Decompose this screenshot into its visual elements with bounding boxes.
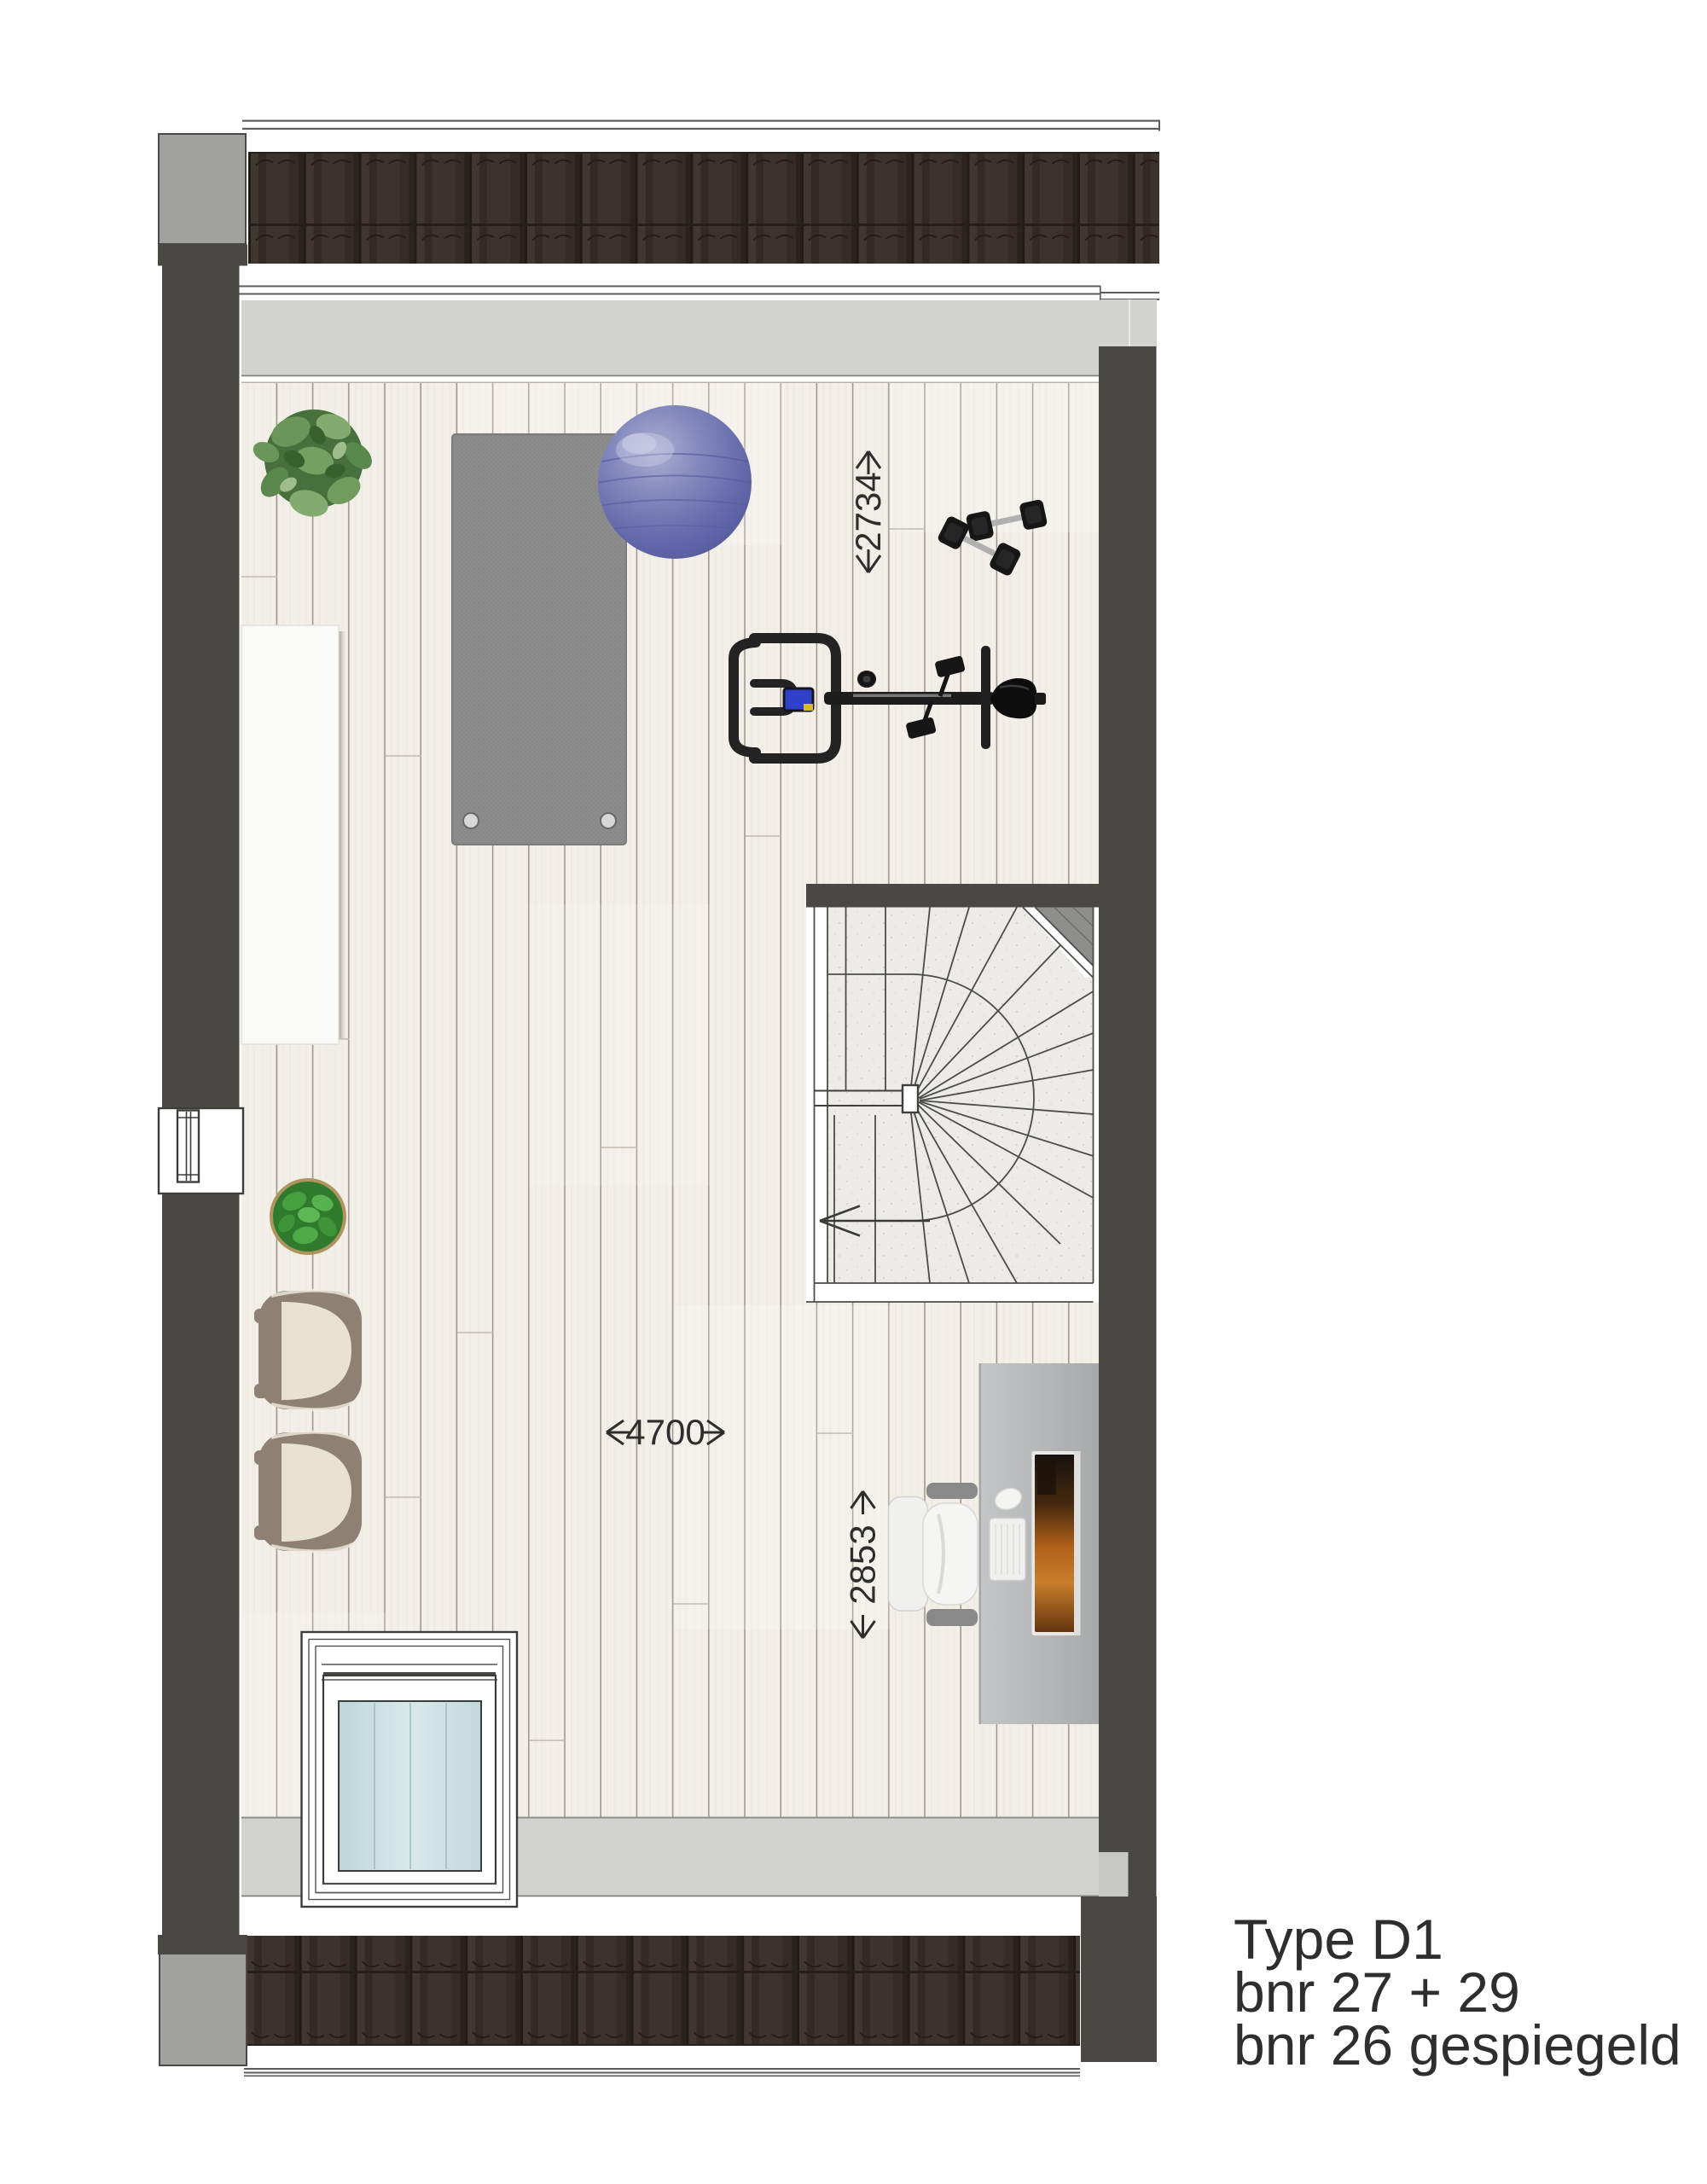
svg-text:4700: 4700 [625,1412,705,1452]
svg-text:2853: 2853 [843,1525,883,1604]
svg-text:2734: 2734 [848,472,888,551]
svg-text:bnr 26 gespiegeld: bnr 26 gespiegeld [1234,2013,1681,2077]
